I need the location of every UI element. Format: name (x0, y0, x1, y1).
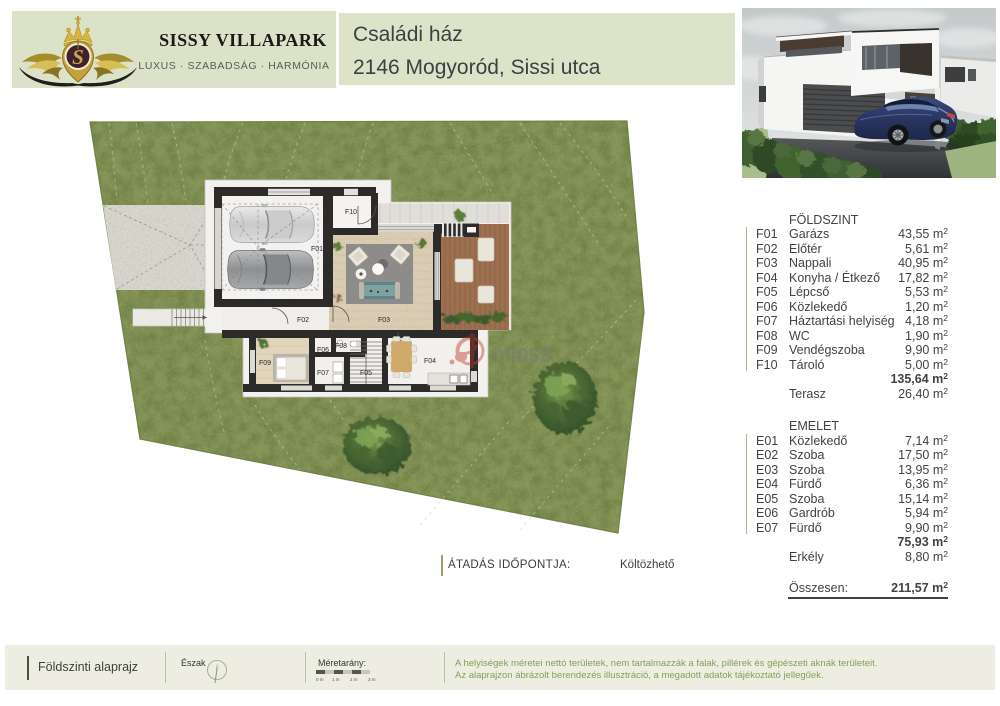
svg-text:3 m: 3 m (368, 677, 376, 682)
svg-text:F06: F06 (317, 347, 329, 354)
svg-text:F02: F02 (297, 317, 309, 324)
svg-text:F08: F08 (335, 343, 347, 350)
svg-text:F10: F10 (345, 209, 357, 216)
svg-text:2 m: 2 m (350, 677, 358, 682)
svg-text:F07: F07 (317, 370, 329, 377)
svg-text:F05: F05 (360, 370, 372, 377)
svg-text:F04: F04 (424, 358, 436, 365)
svg-text:1 m: 1 m (332, 677, 340, 682)
svg-text:F09: F09 (259, 360, 271, 367)
svg-text:miosz: miosz (492, 339, 550, 369)
svg-text:F03: F03 (378, 317, 390, 324)
svg-text:0 m: 0 m (316, 677, 324, 682)
svg-text:F01: F01 (311, 246, 323, 253)
